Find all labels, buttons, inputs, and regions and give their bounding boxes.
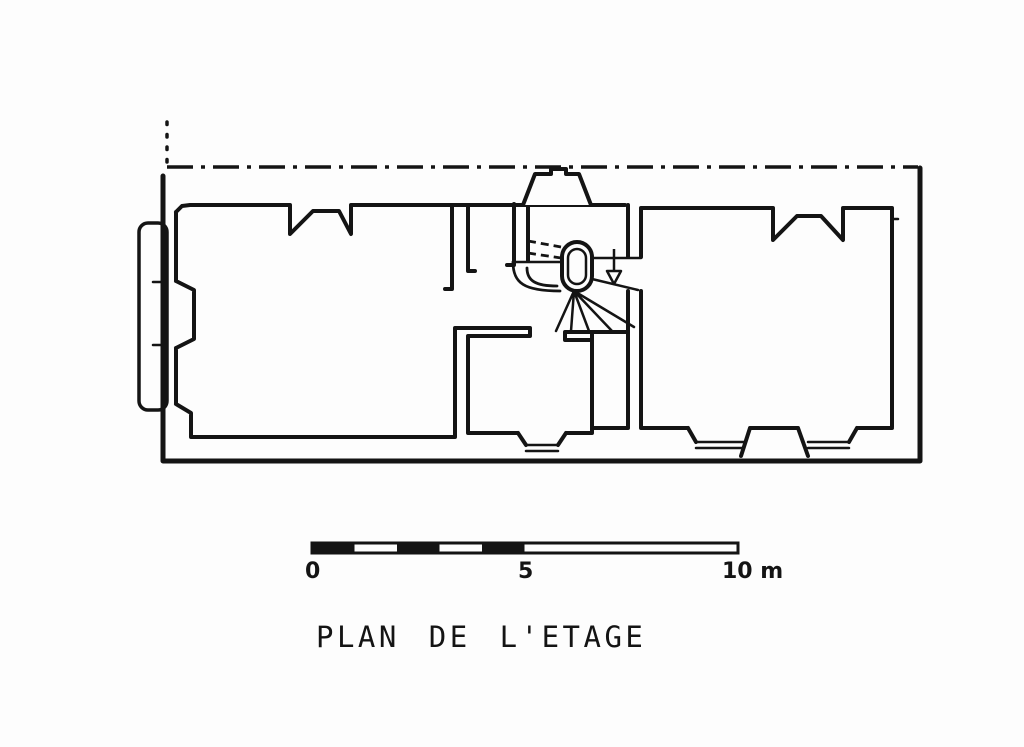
- scale-label-5: 5: [518, 559, 533, 584]
- scale-bar: 0 5 10 m: [305, 543, 783, 584]
- scale-label-0: 0: [305, 559, 320, 584]
- stair-winder-arcs: [513, 262, 560, 291]
- stair-dashed-flue-lines: [528, 241, 561, 258]
- scale-bar-segment-2-3: [397, 543, 440, 553]
- stair-treads: [556, 291, 634, 331]
- scale-bar-segment-0-1: [312, 543, 355, 553]
- scale-bar-outline: [312, 543, 738, 553]
- scale-label-10m: 10 m: [722, 559, 783, 584]
- scale-bar-segment-4-5: [482, 543, 525, 553]
- chimney-projection: [523, 169, 591, 205]
- floorplan-sheet: 0 5 10 m PLAN DE L'ETAGE: [0, 0, 1024, 747]
- plan-title: PLAN DE L'ETAGE: [316, 620, 646, 654]
- outer-wall: [163, 168, 920, 461]
